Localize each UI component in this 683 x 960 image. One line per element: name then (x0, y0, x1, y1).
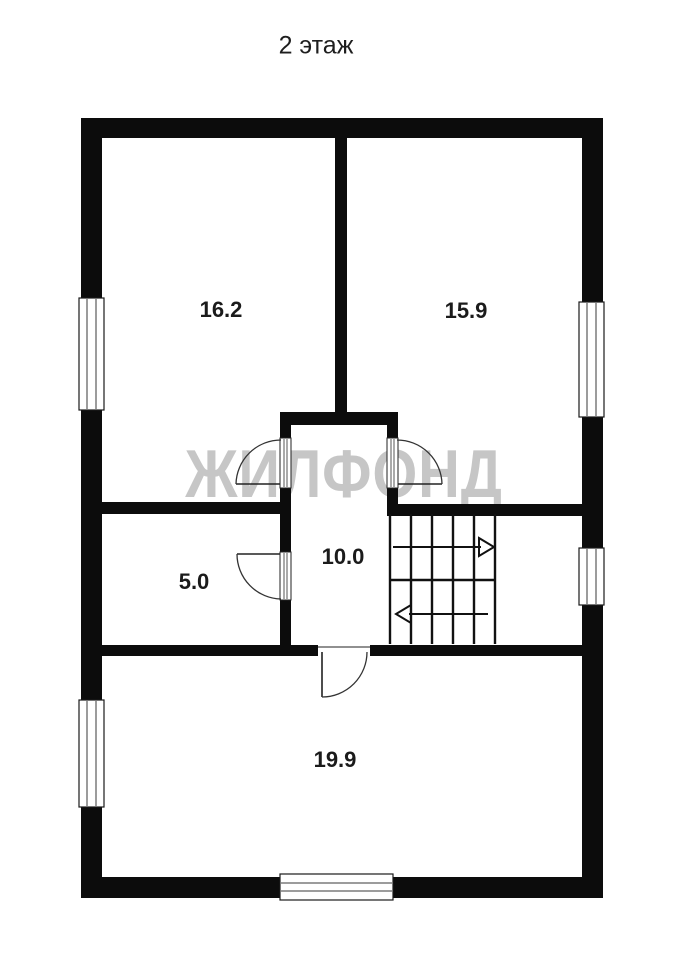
wall-16-2-bottom (102, 502, 280, 514)
door-room-15-9 (387, 438, 442, 488)
door-swing-arc (236, 440, 281, 484)
room-area-label-15-9: 15.9 (445, 298, 488, 324)
door-swing-arc (237, 554, 281, 599)
wall-hall-right-a (387, 425, 398, 438)
window-left-lower (79, 700, 104, 807)
wall-hall-left-b (280, 488, 291, 552)
door-room-16-2 (236, 438, 291, 488)
staircase (390, 514, 495, 644)
door-swing-arc (397, 440, 442, 484)
window-right-upper (579, 302, 604, 417)
wall-hall-top (280, 412, 398, 425)
room-area-label-5-0: 5.0 (179, 569, 210, 595)
wall-top (81, 118, 603, 138)
room-area-label-16-2: 16.2 (200, 297, 243, 323)
room-area-label-10-0: 10.0 (322, 544, 365, 570)
door-room-5-0 (237, 552, 291, 600)
wall-hall-left-c (280, 600, 291, 645)
floor-plan-drawing (0, 0, 683, 960)
wall-right (582, 118, 603, 897)
window-right-lower (579, 548, 604, 605)
window-left-upper (79, 298, 104, 410)
wall-15-9-bottom (387, 504, 582, 516)
window-bottom (280, 874, 393, 900)
room-area-label-19-9: 19.9 (314, 747, 357, 773)
wall-hall-left-a (280, 425, 291, 438)
door-room-19-9 (318, 644, 370, 697)
wall-mid-left (102, 645, 318, 656)
floor-plan-page: 2 этаж ЖИЛФОНД (0, 0, 683, 960)
wall-room-divider-top (335, 138, 347, 425)
door-swing-arc (322, 652, 367, 697)
interior-walls (102, 138, 582, 656)
wall-mid-right (370, 645, 582, 656)
stairs-up-arrow-icon (393, 538, 494, 556)
